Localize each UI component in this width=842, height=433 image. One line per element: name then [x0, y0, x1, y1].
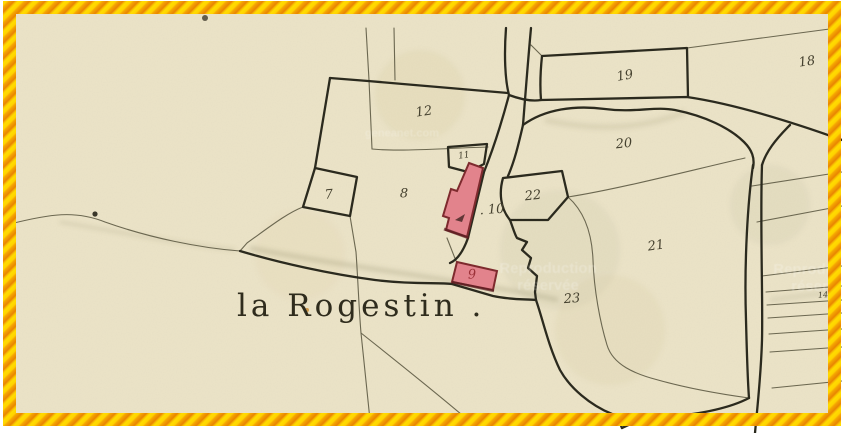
parcel-number-19: 19 — [616, 67, 635, 85]
parcel-number-9: 9 — [468, 267, 477, 282]
parcel-number-layer: 781112. 10919182022212314 — [0, 0, 842, 433]
watermark-3: Reproduction réservée — [767, 261, 842, 296]
parcel-number-7: 7 — [324, 187, 334, 203]
parcel-number-10: . 10 — [479, 202, 505, 219]
watermark-1: geneanet.com — [365, 128, 439, 141]
parcel-number-20: 20 — [615, 136, 633, 153]
parcel-number-18: 18 — [798, 53, 816, 70]
parcel-number-22: 22 — [524, 188, 542, 205]
watermark-2: Reproduction réservée — [493, 260, 603, 295]
parcel-number-11: 11 — [458, 150, 471, 161]
cadastral-map-screenshot: la Rogestin . 781112. 10919182022212314 … — [0, 0, 842, 433]
parcel-number-8: 8 — [400, 187, 408, 202]
parcel-number-21: 21 — [647, 237, 665, 254]
parcel-number-12: 12 — [415, 103, 433, 120]
